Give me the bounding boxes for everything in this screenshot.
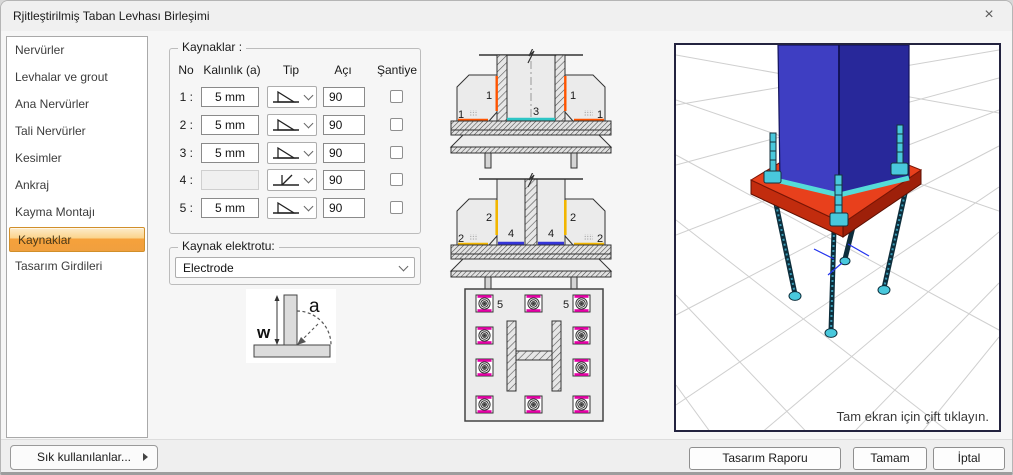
fillet-weld-icon [272,89,300,105]
chevron-down-icon [304,119,314,129]
row-number: 3 : [173,143,193,163]
col-header-thickness: Kalınlık (a) [199,63,265,77]
weld-a-label: a [309,296,320,317]
site-weld-checkbox-4[interactable] [390,173,403,186]
stiffener-weld-label: 2 [486,212,492,224]
col-header-site: Şantiye [371,63,423,77]
sidebar-item-nervurler[interactable]: Nervürler [7,37,147,64]
angle-input-2[interactable] [323,115,365,135]
base-weld-label: 2 [597,233,603,245]
dialog-title: Rjitleştirilmiş Taban Levhası Birleşimi [13,1,210,31]
arrow-right-icon [143,453,148,461]
row-number: 2 : [173,115,193,135]
close-icon[interactable]: × [974,1,1004,31]
row-number: 5 : [173,198,193,218]
fillet-weld-icon [272,145,300,161]
fillet-weld-icon [272,200,300,216]
chevron-down-icon [304,202,314,212]
col-header-type: Tip [269,63,313,77]
thickness-input-3[interactable] [201,143,259,163]
weld-type-select-5[interactable] [267,197,317,219]
sidebar-item-ana-nervurler[interactable]: Ana Nervürler [7,91,147,118]
chevron-down-icon [304,91,314,101]
dialog-stiffened-base-plate: Rjitleştirilmiş Taban Levhası Birleşimi … [0,0,1013,475]
thickness-input-1[interactable] [201,87,259,107]
flange-weld-label: 4 [548,228,554,240]
weld-type-select-3[interactable] [267,142,317,164]
weld-type-select-2[interactable] [267,114,317,136]
3d-preview-viewport[interactable]: Tam ekran için çift tıklayın. [674,43,1001,432]
stiffener-weld-label: 1 [486,90,492,102]
sidebar-item-ankraj[interactable]: Ankraj [7,172,147,199]
stiffener-weld-label: 1 [570,90,576,102]
sidebar-item-kesimler[interactable]: Kesimler [7,145,147,172]
section-drawing-stiffener-welds-2-4: 2 2 2 2 4 4 [449,173,613,297]
stiffener-weld-label: 2 [570,212,576,224]
favorites-button[interactable]: Sık kullanılanlar... [10,445,158,470]
electrode-select[interactable]: Electrode [175,257,415,278]
col-header-no: No [173,63,199,77]
angle-input-3[interactable] [323,143,365,163]
row-number: 4 : [173,170,193,190]
design-report-button[interactable]: Tasarım Raporu [689,447,841,470]
base-weld-label: 1 [597,109,603,121]
fullscreen-hint: Tam ekran için çift tıklayın. [837,409,989,424]
flange-weld-label: 4 [508,228,514,240]
angle-input-1[interactable] [323,87,365,107]
angle-input-5[interactable] [323,198,365,218]
angle-input-4[interactable] [323,170,365,190]
fillet-weld-icon [272,117,300,133]
thickness-input-4-disabled [201,170,259,190]
site-weld-checkbox-2[interactable] [390,118,403,131]
sidebar-item-kaynaklar-selected[interactable]: Kaynaklar [9,227,145,252]
thickness-input-5[interactable] [201,198,259,218]
column-weld-label: 3 [533,106,539,118]
bolt-weld-label: 5 [497,299,503,311]
ok-button[interactable]: Tamam [853,447,927,470]
favorites-label: Sık kullanılanlar... [37,450,131,464]
electrode-groupbox: Kaynak elektrotu: Electrode [169,247,421,285]
site-weld-checkbox-5[interactable] [390,201,403,214]
chevron-down-icon [304,147,314,157]
sidebar-item-tali-nervurler[interactable]: Tali Nervürler [7,118,147,145]
site-weld-checkbox-3[interactable] [390,146,403,159]
3d-column-render [676,45,999,430]
base-weld-label: 1 [458,109,464,121]
welds-group-title: Kaynaklar : [178,40,246,54]
electrode-group-title: Kaynak elektrotu: [178,239,279,253]
row-number: 1 : [173,87,193,107]
cancel-button[interactable]: İptal [933,447,1005,470]
sidebar-item-tasarim-girdileri[interactable]: Tasarım Girdileri [7,253,147,280]
sidebar-item-levhalar-ve-grout[interactable]: Levhalar ve grout [7,64,147,91]
col-header-angle: Açı [321,63,365,77]
weld-w-label: w [256,323,271,342]
bolt-weld-label: 5 [563,299,569,311]
weld-type-select-1[interactable] [267,86,317,108]
weld-type-select-4[interactable] [267,169,317,191]
chevron-down-icon [399,261,409,271]
chevron-down-icon [304,174,314,184]
site-weld-checkbox-1[interactable] [390,90,403,103]
weld-throat-drawing: w a [246,289,336,363]
weld-throat-diagram: w a [246,289,336,363]
section-drawing-stiffener-welds-1-3: 1 1 1 1 3 [449,49,613,171]
sidebar-item-kayma-montaji[interactable]: Kayma Montajı [7,199,147,226]
bevel-weld-icon [272,172,300,188]
category-sidebar: Nervürler Levhalar ve grout Ana Nervürle… [6,36,148,438]
thickness-input-2[interactable] [201,115,259,135]
electrode-value: Electrode [183,261,234,275]
base-weld-label: 2 [458,233,464,245]
title-bar: Rjitleştirilmiş Taban Levhası Birleşimi … [1,1,1012,31]
plan-drawing-anchor-bolts: 5 5 [463,287,605,427]
